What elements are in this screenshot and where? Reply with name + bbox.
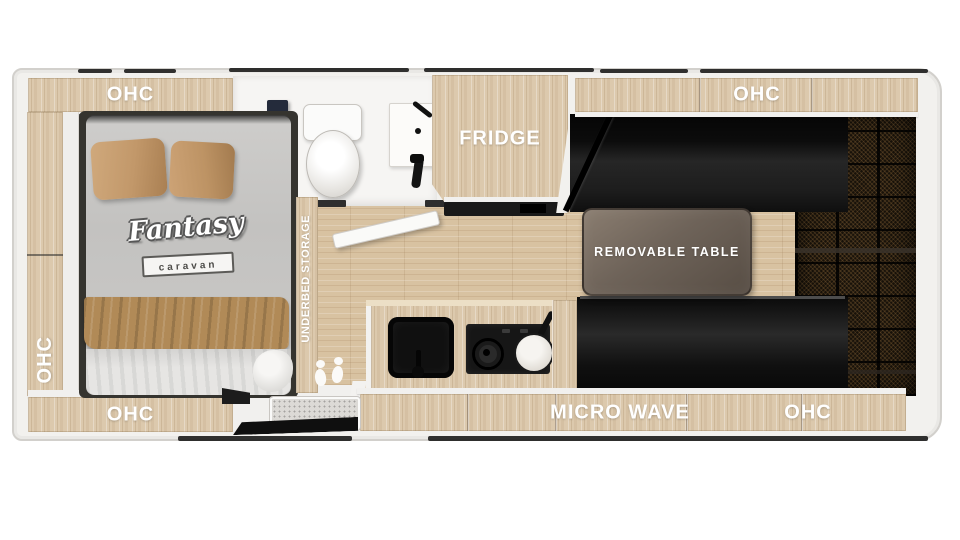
ohc-cabinet-top-right: OHC xyxy=(575,78,918,112)
brand-name: Fantasy xyxy=(127,207,245,248)
fridge-label: FRIDGE xyxy=(459,127,541,150)
cabinet-divider xyxy=(699,78,701,112)
footprint-sole xyxy=(314,368,327,386)
removable-table: REMOVABLE TABLE xyxy=(582,208,752,296)
pillow xyxy=(169,140,236,199)
footprint-toe xyxy=(315,359,325,368)
awning-rail-line xyxy=(700,69,928,73)
footprints-icon xyxy=(313,355,347,391)
cooktop-knob xyxy=(502,329,510,333)
caravan-floorplan: FRIDGE REMOVABLE TABLE OHC OHC OHC OHC xyxy=(0,0,960,540)
rear-panel-divider xyxy=(795,248,916,253)
underbed-storage-label: UNDERBED STORAGE xyxy=(300,215,312,343)
bed-blanket xyxy=(84,297,289,349)
ohc-cabinet-left: OHC xyxy=(27,112,63,396)
ohc-cabinet-top-left: OHC xyxy=(28,78,233,112)
footprint-sole xyxy=(331,365,344,383)
bottom-cabinet-band: MICRO WAVE OHC xyxy=(360,394,906,431)
shelf-item xyxy=(520,204,546,213)
footprint-toe xyxy=(333,356,343,365)
dinette-bench-top xyxy=(570,114,848,212)
ohc-left-label: OHC xyxy=(34,336,57,383)
pan xyxy=(514,333,554,373)
cabinet-divider xyxy=(811,78,813,112)
awning-rail-line xyxy=(178,436,352,441)
kitchen-faucet-knob xyxy=(412,366,424,378)
awning-rail-line xyxy=(78,69,112,73)
removable-table-label: REMOVABLE TABLE xyxy=(594,245,740,259)
pillow xyxy=(90,137,168,200)
cabinet-divider xyxy=(467,394,469,431)
burner-center-dot xyxy=(483,349,490,356)
awning-rail-line xyxy=(428,436,928,441)
shower-wand-head xyxy=(410,154,424,163)
brand-banner: caravan xyxy=(142,252,235,278)
brand-logo: Fantasy caravan xyxy=(126,210,246,285)
ohc-bottom-right-label: OHC xyxy=(784,401,831,424)
ohc-cabinet-bottom-left: OHC xyxy=(28,397,233,432)
awning-rail-line xyxy=(229,68,409,72)
fridge-lower-shelf xyxy=(444,202,564,216)
counter-back-edge xyxy=(366,300,562,306)
microwave-label: MICRO WAVE xyxy=(550,401,690,424)
bench-edge-highlight xyxy=(580,296,845,299)
awning-rail-line xyxy=(124,69,176,73)
kitchen-side-panel xyxy=(552,300,577,392)
bed-head-edge xyxy=(86,115,291,124)
cabinet-divider xyxy=(27,254,63,256)
sink-drain-dot xyxy=(415,128,421,134)
ohc-bottom-left-label: OHC xyxy=(107,403,154,426)
toilet-bowl xyxy=(306,130,360,198)
brand-sub: caravan xyxy=(158,259,217,273)
fridge-cabinet: FRIDGE xyxy=(432,75,568,202)
cabinet-face xyxy=(575,112,918,117)
ohc-top-right-label: OHC xyxy=(733,84,780,107)
ohc-top-left-label: OHC xyxy=(107,84,154,107)
cooktop-knob xyxy=(520,329,528,333)
dinette-bench-bottom xyxy=(577,297,848,395)
cabinet-face xyxy=(63,112,79,396)
awning-rail-line xyxy=(424,68,594,72)
awning-rail-line xyxy=(600,69,688,73)
